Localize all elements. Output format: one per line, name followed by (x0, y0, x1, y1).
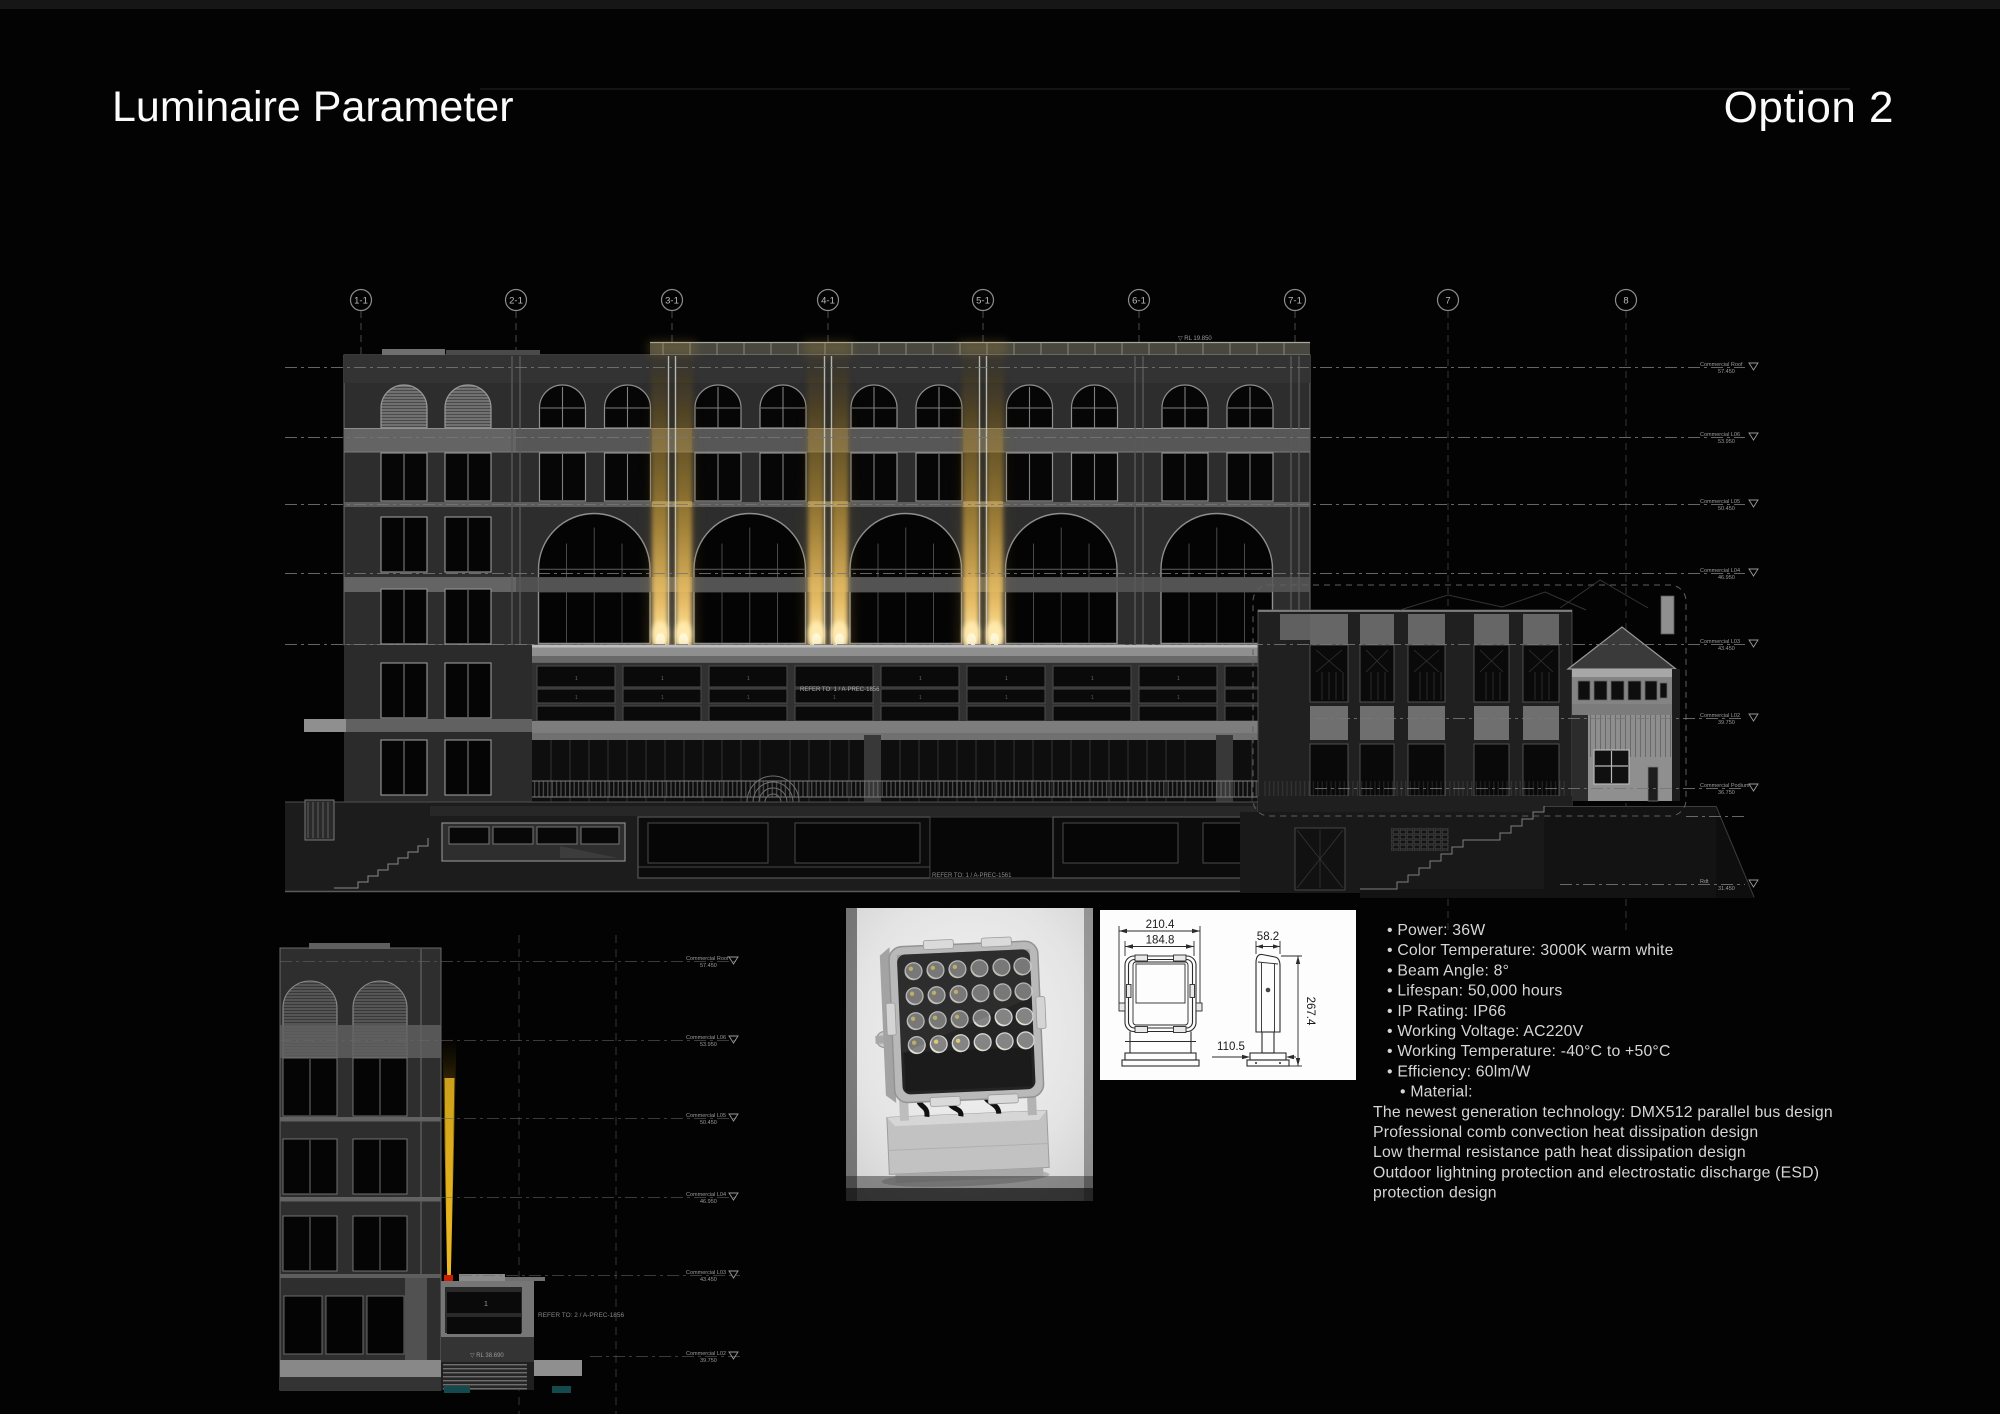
svg-text:58.2: 58.2 (1257, 931, 1279, 943)
svg-text:1: 1 (747, 695, 750, 701)
svg-text:Low thermal resistance path he: Low thermal resistance path heat dissipa… (1373, 1144, 1746, 1161)
svg-text:39.750: 39.750 (700, 1358, 717, 1364)
svg-text:Commercial L03: Commercial L03 (686, 1270, 726, 1276)
svg-text:Rdt: Rdt (1700, 879, 1709, 885)
svg-text:53.950: 53.950 (700, 1042, 717, 1048)
svg-text:31.450: 31.450 (1718, 886, 1735, 892)
svg-text:REFER TO: 2 / A-PREC-1856: REFER TO: 2 / A-PREC-1856 (538, 1312, 624, 1319)
svg-text:• IP Rating: IP66: • IP Rating: IP66 (1387, 1003, 1506, 1020)
svg-text:Commercial L03: Commercial L03 (1700, 639, 1740, 645)
svg-text:267.4: 267.4 (1304, 997, 1316, 1026)
svg-text:36.750: 36.750 (1718, 790, 1735, 796)
svg-text:• Lifespan: 50,000 hours: • Lifespan: 50,000 hours (1387, 983, 1562, 1000)
svg-text:▽ RL 19.850: ▽ RL 19.850 (1178, 336, 1212, 342)
svg-text:5-1: 5-1 (976, 296, 990, 307)
svg-text:1: 1 (919, 695, 922, 701)
svg-text:• Working Temperature: -40°C t: • Working Temperature: -40°C to +50°C (1387, 1043, 1671, 1060)
svg-text:184.8: 184.8 (1146, 935, 1175, 947)
svg-text:1: 1 (747, 676, 750, 682)
svg-text:1: 1 (1091, 676, 1094, 682)
svg-text:1: 1 (1177, 695, 1180, 701)
svg-text:protection design: protection design (1373, 1185, 1497, 1202)
svg-text:46.950: 46.950 (1718, 575, 1735, 581)
svg-text:• Color Temperature: 3000K war: • Color Temperature: 3000K warm white (1387, 942, 1674, 959)
svg-text:The newest generation technolo: The newest generation technology: DMX512… (1373, 1104, 1833, 1121)
svg-text:39.750: 39.750 (1718, 720, 1735, 726)
svg-text:Commercial Podium: Commercial Podium (1700, 783, 1750, 789)
svg-text:Commercial Roof: Commercial Roof (686, 956, 729, 962)
svg-text:57.450: 57.450 (700, 963, 717, 969)
svg-text:Professional comb convection h: Professional comb convection heat dissip… (1373, 1124, 1758, 1141)
svg-text:110.5: 110.5 (1217, 1041, 1245, 1053)
svg-text:43.450: 43.450 (700, 1277, 717, 1283)
svg-text:53.950: 53.950 (1718, 439, 1735, 445)
svg-text:1: 1 (484, 1301, 488, 1308)
svg-text:2-1: 2-1 (509, 296, 523, 307)
svg-text:1: 1 (661, 695, 664, 701)
svg-text:1: 1 (575, 676, 578, 682)
svg-text:Luminaire Parameter: Luminaire Parameter (112, 83, 514, 131)
svg-text:Commercial L05: Commercial L05 (686, 1113, 726, 1119)
svg-text:▽ RL 38.690: ▽ RL 38.690 (470, 1353, 504, 1359)
svg-text:1: 1 (661, 676, 664, 682)
svg-text:Outdoor lightning protection a: Outdoor lightning protection and electro… (1373, 1164, 1819, 1181)
svg-text:Commercial L06: Commercial L06 (1700, 432, 1740, 438)
svg-text:Commercial L02: Commercial L02 (686, 1351, 726, 1357)
svg-text:1: 1 (575, 695, 578, 701)
svg-text:7: 7 (1445, 296, 1450, 307)
svg-text:1: 1 (1177, 676, 1180, 682)
svg-text:1: 1 (1005, 695, 1008, 701)
svg-text:• Efficiency: 60lm/W: • Efficiency: 60lm/W (1387, 1063, 1531, 1080)
svg-text:Commercial L04: Commercial L04 (1700, 568, 1740, 574)
svg-text:1: 1 (833, 695, 836, 701)
svg-text:• Working Voltage: AC220V: • Working Voltage: AC220V (1387, 1023, 1584, 1040)
svg-text:3-1: 3-1 (665, 296, 679, 307)
svg-text:50.450: 50.450 (700, 1120, 717, 1126)
svg-text:1: 1 (1005, 676, 1008, 682)
svg-text:7-1: 7-1 (1288, 296, 1302, 307)
svg-text:8: 8 (1623, 296, 1628, 307)
svg-text:46.950: 46.950 (700, 1199, 717, 1205)
svg-text:43.450: 43.450 (1718, 646, 1735, 652)
svg-text:4-1: 4-1 (821, 296, 835, 307)
svg-text:• Power: 36W: • Power: 36W (1387, 922, 1485, 939)
svg-text:6-1: 6-1 (1132, 296, 1146, 307)
svg-text:• Beam Angle: 8°: • Beam Angle: 8° (1387, 962, 1509, 979)
svg-text:Commercial L05: Commercial L05 (1700, 499, 1740, 505)
svg-text:1: 1 (1091, 695, 1094, 701)
svg-text:57.450: 57.450 (1718, 369, 1735, 375)
svg-text:1: 1 (919, 676, 922, 682)
svg-text:REFER TO: 1 / A-PREC-1856: REFER TO: 1 / A-PREC-1856 (800, 687, 880, 693)
svg-text:50.450: 50.450 (1718, 506, 1735, 512)
svg-text:Option 2: Option 2 (1724, 83, 1894, 132)
svg-text:210.4: 210.4 (1146, 919, 1175, 931)
svg-text:Commercial Roof: Commercial Roof (1700, 362, 1743, 368)
svg-text:REFER TO: 1 / A-PREC-1561: REFER TO: 1 / A-PREC-1561 (932, 873, 1012, 879)
svg-text:1-1: 1-1 (354, 296, 368, 307)
svg-text:Commercial L02: Commercial L02 (1700, 713, 1740, 719)
svg-text:Commercial L06: Commercial L06 (686, 1035, 726, 1041)
svg-text:• Material:: • Material: (1400, 1084, 1473, 1101)
svg-text:Commercial L04: Commercial L04 (686, 1192, 726, 1198)
